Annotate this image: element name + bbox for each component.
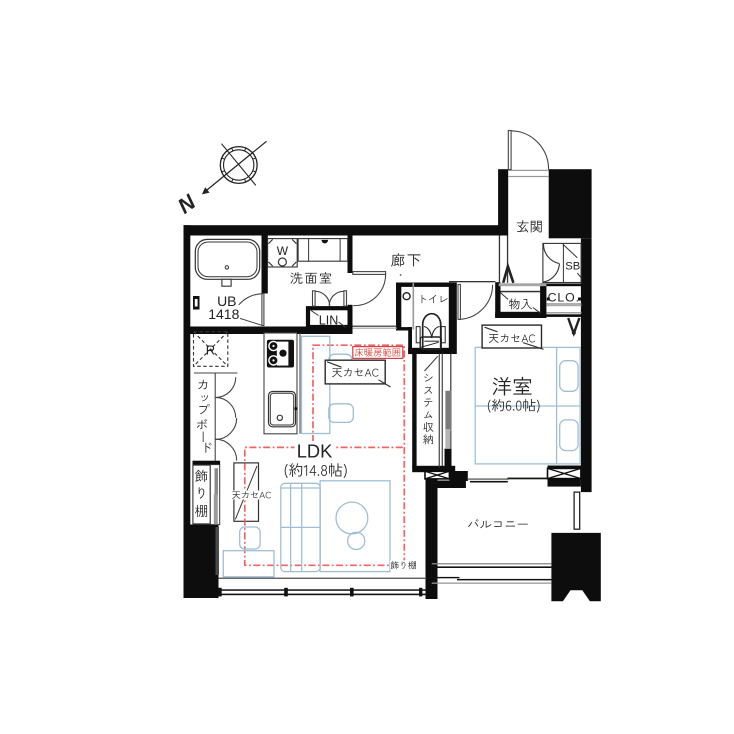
svg-text:R: R xyxy=(206,343,215,358)
svg-text:LIN: LIN xyxy=(319,314,338,328)
svg-text:CLO.: CLO. xyxy=(548,291,580,305)
svg-text:1418: 1418 xyxy=(208,306,239,322)
svg-text:LDK: LDK xyxy=(297,441,333,462)
svg-text:W: W xyxy=(277,244,289,258)
svg-text:SB: SB xyxy=(565,261,580,273)
